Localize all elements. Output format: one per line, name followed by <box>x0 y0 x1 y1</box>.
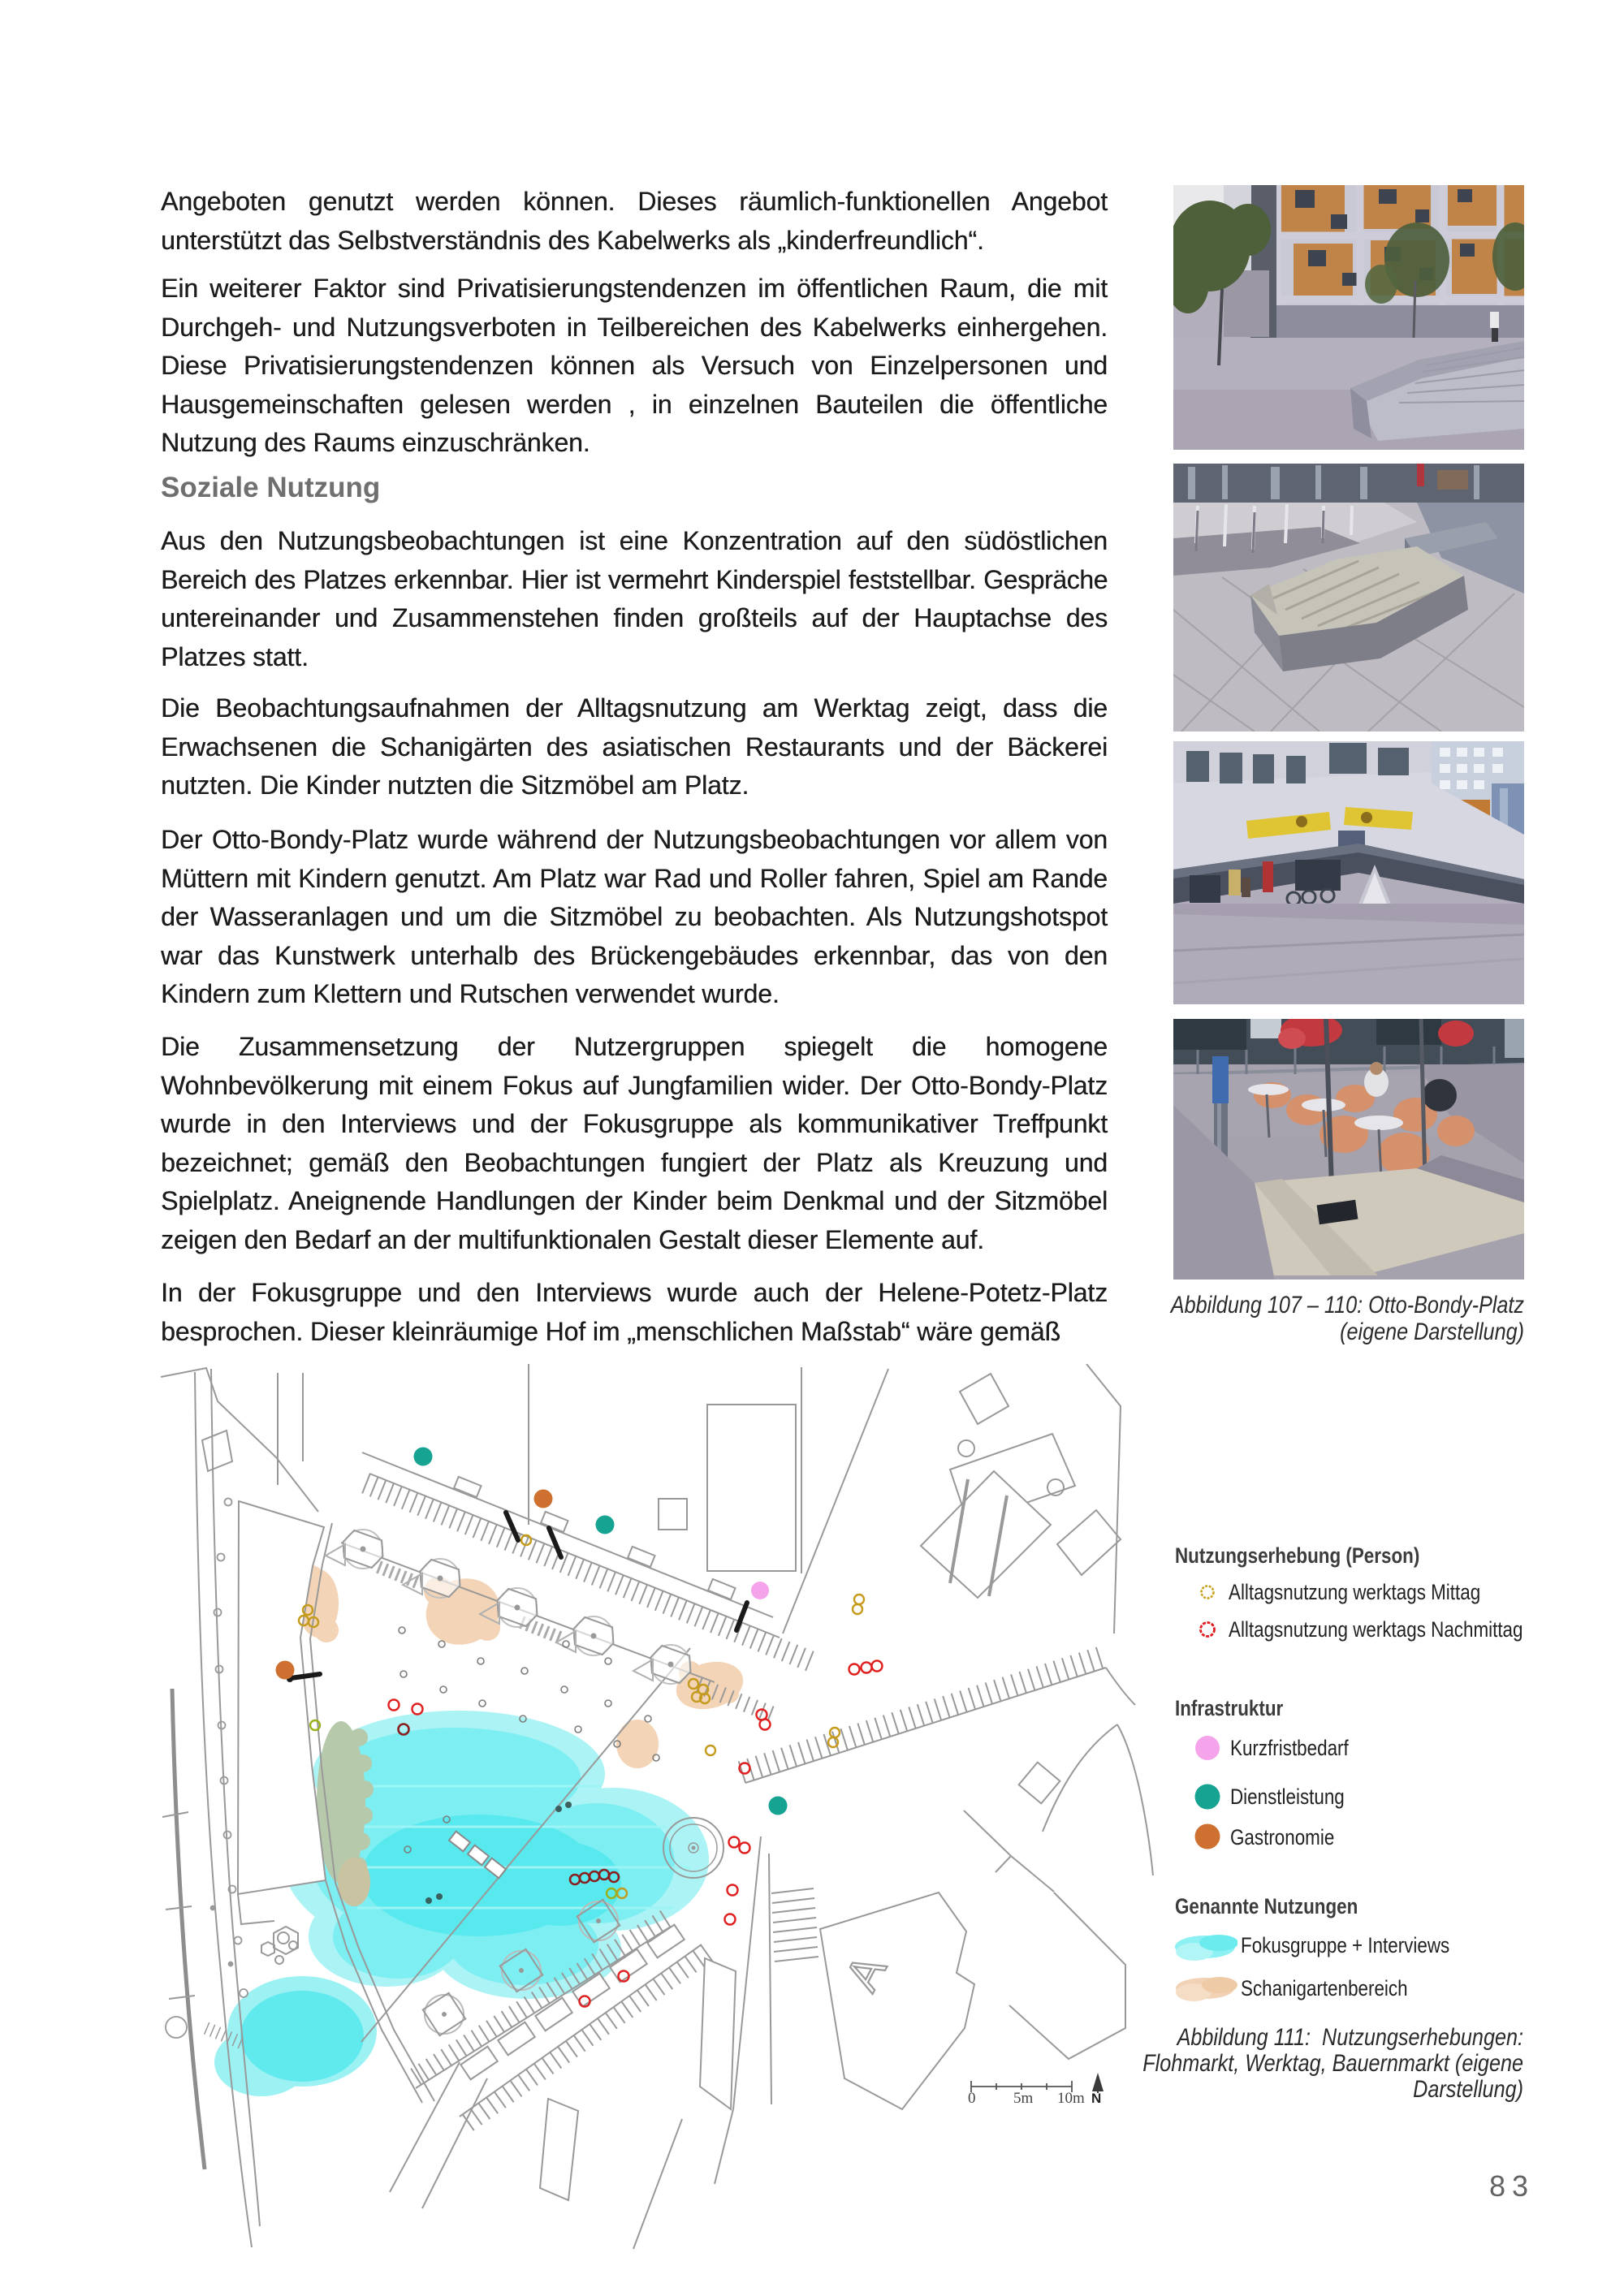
svg-text:5m: 5m <box>1013 2090 1034 2107</box>
svg-text:N: N <box>1091 2091 1101 2106</box>
svg-text:0: 0 <box>968 2090 976 2107</box>
svg-text:10m: 10m <box>1057 2090 1085 2107</box>
